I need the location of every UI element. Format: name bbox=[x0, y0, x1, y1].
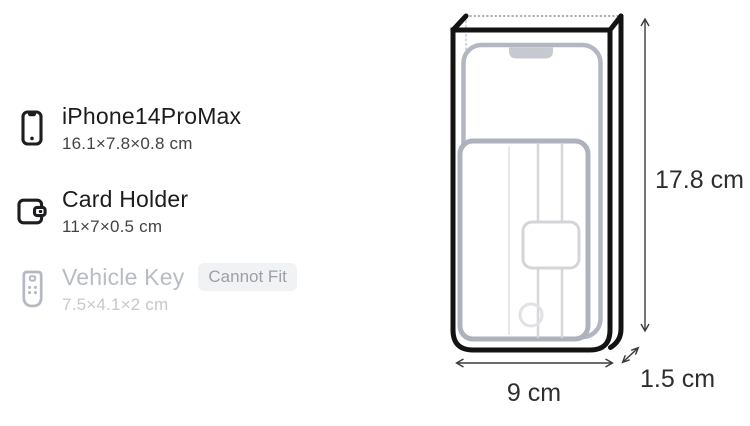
height-dimension-label: 17.8 cm bbox=[655, 166, 744, 194]
width-dimension-label: 9 cm bbox=[507, 379, 561, 407]
pocket-diagram: 17.8 cm 9 cm 1.5 cm bbox=[0, 0, 750, 426]
card-holder-silhouette bbox=[460, 141, 588, 339]
card-holder-buckle bbox=[523, 222, 579, 268]
phone-notch bbox=[509, 48, 553, 59]
width-dimension bbox=[457, 359, 613, 367]
depth-dimension bbox=[623, 348, 639, 363]
height-dimension bbox=[641, 19, 649, 331]
pocket-fit-screen: iPhone14ProMax 16.1×7.8×0.8 cm Card Hold… bbox=[0, 0, 750, 426]
depth-dimension-label: 1.5 cm bbox=[640, 365, 715, 393]
